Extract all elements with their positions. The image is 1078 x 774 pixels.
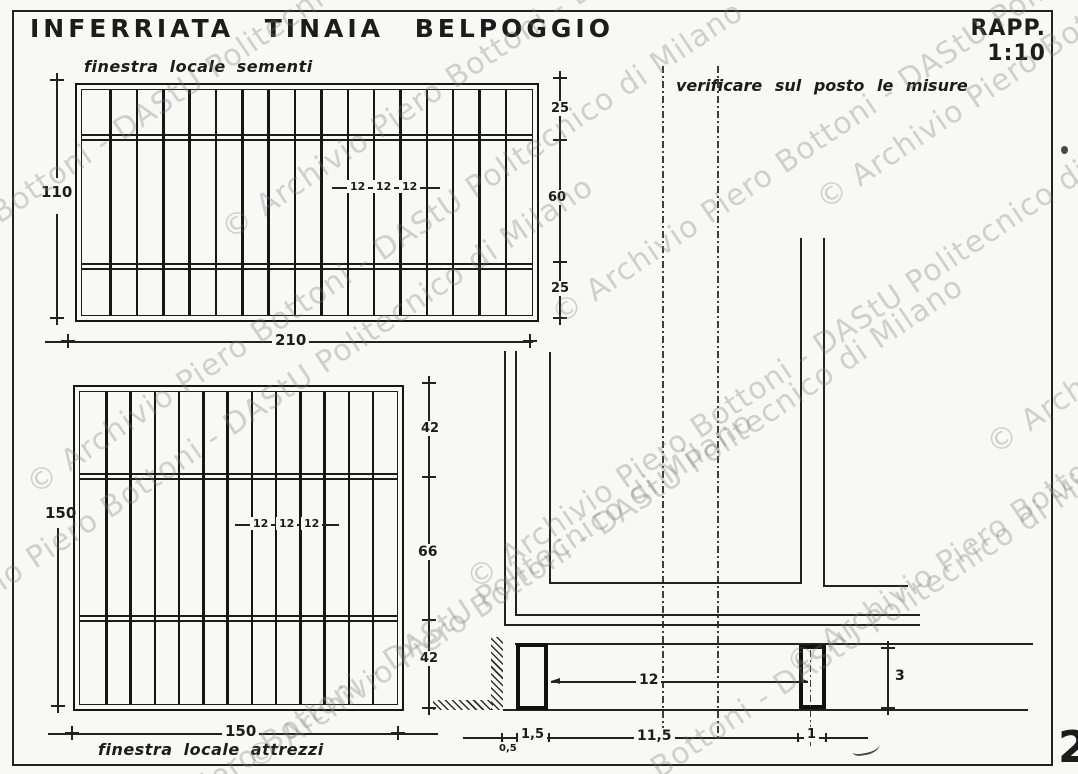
center-line <box>717 66 719 740</box>
dim-bar2-width: 1 <box>804 727 819 742</box>
section-top-line <box>515 643 1033 645</box>
dim-tick <box>65 726 79 740</box>
watermark-text: © Archivio Piero Bottoni - DAStU Politec… <box>420 429 1078 774</box>
dim-bar-spacing: 12 <box>373 180 394 193</box>
dim-tick <box>825 733 827 742</box>
dim-line <box>887 648 889 708</box>
dim-height-grate1: 110 <box>38 184 75 201</box>
dim-seg-grate2-mid: 66 <box>415 544 440 560</box>
detail-frame-line <box>504 624 920 626</box>
bar-section-2 <box>799 645 826 709</box>
grate-sementi-drawing <box>75 83 539 322</box>
dim-tick <box>422 376 436 390</box>
dim-tick <box>797 733 799 742</box>
sheet-border-top <box>12 10 1053 12</box>
dim-tick <box>553 255 567 269</box>
dim-tick <box>881 641 895 655</box>
dim-seg-grate1-mid: 60 <box>545 190 569 205</box>
dim-tick <box>501 733 503 742</box>
page-number: 2 <box>1058 722 1078 773</box>
dim-tick <box>553 71 567 85</box>
page-title: INFERRIATA TINAIA BELPOGGIO <box>30 14 614 43</box>
detail-frame-line <box>549 582 802 584</box>
dim-clear-span: 11,5 <box>634 728 675 744</box>
dim-tick <box>51 699 65 713</box>
dim-bar-spacing: 12 <box>250 517 271 530</box>
center-line <box>662 66 664 740</box>
dim-section-spacing: 12 <box>636 672 661 688</box>
dim-tick <box>881 701 895 715</box>
section-bottom-line <box>503 709 1028 711</box>
detail-frame-line <box>504 351 506 626</box>
detail-frame-line <box>549 352 551 584</box>
sheet-border-right <box>1051 10 1053 766</box>
detail-bar-edge <box>823 238 825 586</box>
dim-seg-grate2-bot: 42 <box>417 651 441 666</box>
dim-seg-grate1-bot: 25 <box>548 281 572 296</box>
dim-seg-grate2-top: 42 <box>418 421 442 436</box>
ink-blot <box>1061 146 1068 154</box>
dim-bar-spacing: 12 <box>276 517 297 530</box>
watermark-text: © Archivio Piero Bottoni - DAStU Politec… <box>460 89 1078 597</box>
grate-inner-frame <box>79 391 398 705</box>
wall-hatch-horizontal <box>433 700 493 710</box>
verification-note: verificare sul posto le misure <box>676 76 968 95</box>
dim-arrow <box>799 678 808 684</box>
grate-attrezzi-drawing <box>73 385 404 711</box>
sheet-border-bottom <box>12 764 1053 766</box>
dim-tick <box>391 726 405 740</box>
dim-bar1-width: 1,5 <box>518 727 547 742</box>
dim-width-grate1: 210 <box>272 332 309 349</box>
detail-frame-line <box>515 351 517 616</box>
dim-tick <box>553 311 567 325</box>
dim-tick <box>61 334 75 348</box>
dim-width-grate2: 150 <box>222 723 259 740</box>
bar-section-1 <box>516 643 548 710</box>
dim-bar-spacing: 12 <box>301 517 322 530</box>
dim-bar-spacing: 12 <box>347 180 368 193</box>
dim-line <box>56 214 58 318</box>
watermark-text: © Archivio Piero Bottoni - DAStU Politec… <box>980 0 1078 462</box>
dim-section-depth: 3 <box>892 668 908 684</box>
dim-tick <box>548 733 550 742</box>
detail-frame-line <box>515 614 920 616</box>
scale-label: RAPP. 1:10 <box>930 16 1046 66</box>
grate-attrezzi-caption: finestra locale attrezzi <box>98 740 324 759</box>
dim-wall-gap: 0,5 <box>496 743 520 755</box>
dim-tick <box>50 311 64 325</box>
grate-inner-frame <box>81 89 533 316</box>
dim-tick <box>50 73 64 87</box>
detail-frame-line <box>823 585 908 587</box>
dim-line <box>551 681 808 683</box>
dim-bar-spacing: 12 <box>399 180 420 193</box>
pencil-mark <box>851 738 881 757</box>
dim-line <box>57 528 59 704</box>
dim-line <box>56 80 58 178</box>
dim-tick <box>422 613 436 627</box>
dim-tick <box>422 470 436 484</box>
grate-sementi-caption: finestra locale sementi <box>84 57 313 76</box>
detail-bar-edge <box>800 238 802 584</box>
architectural-drawing-sheet: INFERRIATA TINAIA BELPOGGIO RAPP. 1:10 v… <box>0 0 1078 774</box>
sheet-border-left <box>12 10 14 766</box>
dim-tick <box>523 334 537 348</box>
dim-seg-grate1-top: 25 <box>548 101 572 116</box>
dim-tick <box>553 133 567 147</box>
dim-height-grate2: 150 <box>42 505 79 522</box>
dim-arrow <box>551 678 560 684</box>
